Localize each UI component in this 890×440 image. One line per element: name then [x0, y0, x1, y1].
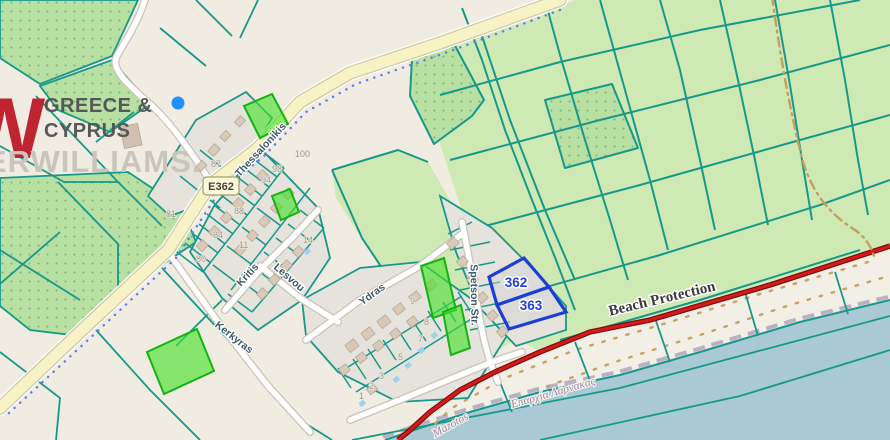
map-canvas[interactable]: 100 98 94 88 87 84 81 80 14 11 9 8 7 5 3… [0, 0, 890, 440]
route-badge: E362 [203, 177, 239, 195]
parcel-number: 100 [295, 149, 310, 159]
parcel-number: 3 [379, 371, 384, 381]
parcel-number: 5 [398, 352, 403, 362]
location-marker-dot[interactable] [172, 97, 185, 110]
parcel-362-label: 362 [505, 275, 528, 290]
parcel-number: 94 [261, 175, 271, 185]
parcel-number: 88 [234, 206, 244, 216]
parcel-number: 1 [359, 391, 364, 401]
parcel-363-label: 363 [520, 298, 543, 313]
parcel-number: 8 [424, 317, 429, 327]
logo-region-line2: CYPRUS [44, 120, 130, 142]
street-label-spetson: Spetson Str. [467, 264, 480, 326]
parcel-number: 87 [211, 159, 221, 169]
map-svg: 100 98 94 88 87 84 81 80 14 11 9 8 7 5 3… [0, 0, 890, 440]
parcel-number: 7 [418, 334, 423, 344]
parcel-number: 80 [196, 254, 206, 264]
parcel-number: 14 [303, 235, 313, 245]
logo-watermark: ERWILLIAMS. [0, 144, 201, 179]
parcel-number: 2 [369, 381, 374, 391]
parcel-number: 98 [272, 164, 282, 174]
parcel-number: 9 [410, 296, 415, 306]
parcel-number: 11 [239, 240, 248, 250]
logo-region-line1: GREECE & [44, 95, 152, 117]
parcel-number: 84 [213, 230, 223, 240]
parcel-number: 81 [166, 209, 176, 219]
route-badge-label: E362 [208, 181, 234, 193]
